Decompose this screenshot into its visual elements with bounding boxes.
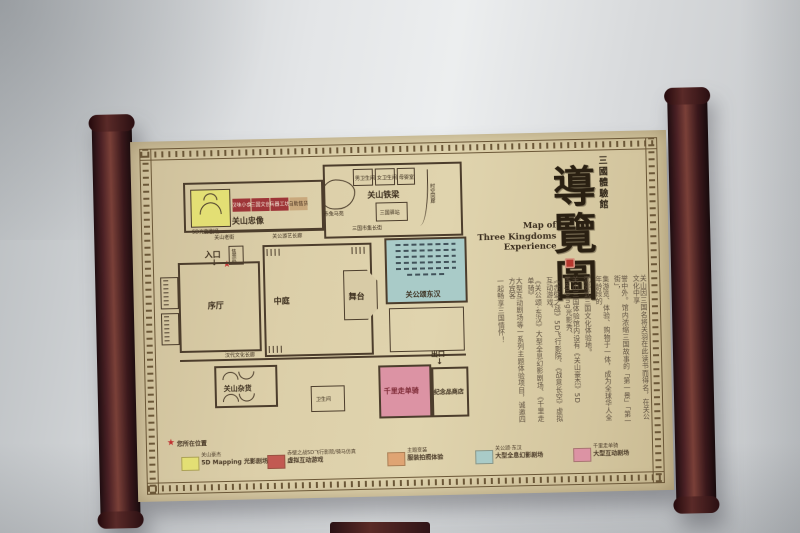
intro-column: 沉浸式三国文化体验地。 (582, 276, 593, 428)
paper-content: 5D光影剧场 汉味小食 三国文创 兵器工坊 自助售货 关山忠像 关山老街 关公游… (155, 152, 654, 481)
intro-column: 《赤壁之战》5D飞行影院、《战意长空》虚拟互动游戏、 (544, 276, 562, 428)
legend-swatch-orange (387, 452, 405, 466)
legend-item-2-line2: 虚拟互动游戏 (287, 456, 356, 466)
label-restroom: 卫生间 (316, 396, 331, 403)
alcove-upper (160, 277, 179, 309)
legend-swatch-yellow (181, 457, 199, 471)
label-corridor-right: 关公游艺长廊 (272, 232, 302, 240)
intro-column: 《关公颂·东汉》大型全息幻影剧场、《千里走单骑》 (526, 277, 544, 429)
legend-item-1-line2: 5D Mapping 光影剧场 (201, 458, 268, 468)
label-grocery: 关山杂货 (224, 383, 252, 394)
legend-item-3-line2: 服装拍照体验 (407, 454, 443, 463)
label-gift-shop: 纪念品商店 (434, 387, 464, 397)
room-restroom: 卫生间 (311, 385, 346, 412)
label-ride: 千里走单骑 (384, 386, 419, 397)
label-loyal-statue: 关山忠像 (232, 215, 264, 227)
seat-row (396, 260, 456, 264)
legend-item-2: 赤壁之战5D飞行影院/骑马仿真 虚拟互动游戏 (287, 449, 356, 465)
label-market-street: 三国市集长街 (352, 224, 382, 232)
label-iron-beam: 关山铁梁 (367, 189, 399, 201)
title-column: 三國體驗館 導覽圖 Map of Three Kingdoms Experien… (472, 152, 653, 474)
red-seal-stamp (565, 258, 575, 268)
exit-arrow-icon: ↓ (436, 357, 443, 366)
seat-row (396, 254, 456, 258)
shop-unit-2: 三国文创 (251, 198, 269, 211)
stairs-hatch (269, 346, 285, 353)
hall-name-vertical: 三國體驗館 (595, 155, 609, 210)
intro-column: 誉中外。馆内浓缩三国故事的「第一景」「第一街」， (612, 275, 630, 427)
seat-row (407, 272, 445, 275)
floor-plan: 5D光影剧场 汉味小食 三国文创 兵器工坊 自助售货 关山忠像 关山老街 关公游… (155, 156, 476, 433)
label-culture-corridor: 汉代文化长廊 (225, 351, 255, 359)
alcove-lower (161, 313, 180, 345)
room-5d-mapping-theater (190, 189, 231, 228)
label-theater: 关公颂东汉 (405, 289, 440, 300)
shop-unit-4: 自助售货 (289, 197, 307, 210)
label-restroom-men: 男卫生间 (355, 175, 375, 182)
label-stage: 舞台 (348, 291, 364, 302)
intro-column: 关山三国体验馆内设有《关山豪杰》5D Mapping光影秀、 (563, 276, 581, 428)
intro-column: 关山因三国名将关羽在此读书而得名，在关公文化中享 (631, 274, 649, 426)
intro-column: 大型互动剧场等一系列主题体验项目，诚邀四方宾客 (507, 277, 525, 429)
scroll-paper: 5D光影剧场 汉味小食 三国文创 兵器工坊 自助售货 关山忠像 关山老街 关公游… (130, 130, 674, 502)
intro-column: 集游览、体验、购物于一体，成为全球华人全年龄段的 (593, 275, 611, 427)
wall-shading-right (740, 0, 800, 533)
scroll-rod-right (667, 89, 717, 512)
label-path: 时空回廊 (429, 183, 436, 203)
legend-star-icon: ★ (167, 438, 175, 448)
legend-item-1: 关山豪杰 5D Mapping 光影剧场 (201, 451, 268, 467)
seat-row (395, 242, 455, 246)
label-lobby: 序厅 (208, 300, 224, 311)
photo-of-scroll-map: 5D光影剧场 汉味小食 三国文创 兵器工坊 自助售货 关山忠像 关山老街 关公游… (0, 0, 800, 533)
legend-you-are-here: 您所在位置 (177, 438, 207, 448)
shop-unit-3: 兵器工坊 (270, 198, 288, 211)
shop-unit-1: 汉味小食 (232, 198, 250, 211)
label-station: 三国驿站 (380, 209, 400, 216)
shelf-wave-icon (222, 372, 238, 380)
frame-edge-below (330, 522, 430, 533)
shelf-wave-icon (239, 393, 255, 401)
hanging-scroll: 5D光影剧场 汉味小食 三国文创 兵器工坊 自助售货 关山忠像 关山老街 关公游… (83, 85, 719, 533)
legend-swatch-red (267, 455, 285, 469)
stage-arc-small-icon (203, 193, 217, 200)
intro-text-block: 关山因三国名将关羽在此读书而得名，在关公文化中享 誉中外。馆内浓缩三国故事的「第… (477, 274, 648, 430)
restroom-men: 男卫生间 (353, 169, 373, 186)
alcove-hatch (164, 316, 170, 341)
seat-row (396, 266, 456, 270)
label-pond: 赤兔马苑 (324, 210, 344, 217)
shelf-wave-icon (223, 394, 239, 402)
label-corridor-left: 关山老街 (214, 234, 234, 241)
alcove-hatch (163, 280, 169, 305)
restroom-women: 女卫生间 (375, 168, 395, 185)
label-atrium: 中庭 (274, 296, 290, 307)
english-title-line3: Experience (478, 242, 557, 254)
stairs-hatch (267, 249, 283, 256)
room-station: 三国驿站 (375, 202, 407, 222)
english-title: Map of Three Kingdoms Experience (477, 220, 557, 254)
room-theater: 关公颂东汉 (384, 236, 467, 304)
room-below-theater (389, 307, 465, 353)
stage-arc-icon (199, 202, 221, 214)
legend-item-3: 主题变装 服装拍照体验 (407, 447, 443, 463)
seat-row (396, 248, 456, 252)
label-restroom-women: 女卫生间 (377, 174, 397, 181)
label-nursing-room: 母婴室 (399, 174, 414, 181)
shelf-wave-icon (238, 371, 254, 379)
intro-column-closing: 一起畅享三国情怀！ (495, 278, 506, 430)
stairs-hatch (351, 247, 367, 254)
